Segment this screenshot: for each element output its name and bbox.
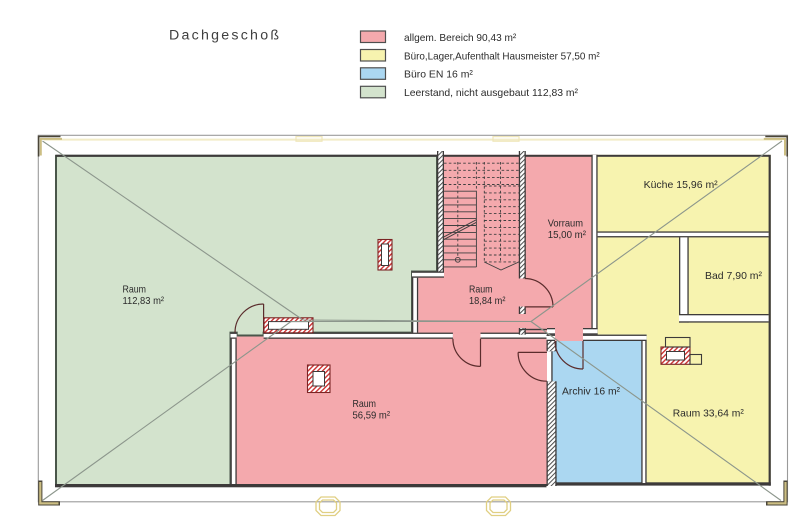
svg-text:112,83 m²: 112,83 m²: [123, 296, 165, 307]
svg-text:Büro EN 16 m²: Büro EN 16 m²: [404, 70, 473, 81]
svg-text:Raum: Raum: [353, 399, 377, 410]
svg-text:allgem. Bereich 90,43 m²: allgem. Bereich 90,43 m²: [404, 33, 517, 44]
svg-text:Raum 33,64 m²: Raum 33,64 m²: [673, 409, 745, 420]
svg-text:18,84 m²: 18,84 m²: [469, 296, 506, 307]
svg-text:Büro,Lager,Aufenthalt Hausmeis: Büro,Lager,Aufenthalt Hausmeister 57,50 …: [404, 51, 600, 62]
svg-text:Archiv 16 m²: Archiv 16 m²: [562, 387, 621, 398]
svg-text:Raum: Raum: [123, 285, 147, 296]
svg-text:Leerstand, nicht ausgebaut 112: Leerstand, nicht ausgebaut 112,83 m²: [404, 88, 579, 99]
svg-text:Küche 15,96 m²: Küche 15,96 m²: [644, 180, 719, 191]
svg-text:Bad 7,90 m²: Bad 7,90 m²: [705, 271, 763, 282]
svg-text:Raum: Raum: [469, 285, 493, 296]
svg-text:Dachgeschoß: Dachgeschoß: [169, 28, 279, 44]
svg-text:Vorraum: Vorraum: [548, 219, 583, 230]
svg-text:56,59 m²: 56,59 m²: [353, 410, 391, 421]
svg-text:15,00 m²: 15,00 m²: [548, 230, 587, 241]
